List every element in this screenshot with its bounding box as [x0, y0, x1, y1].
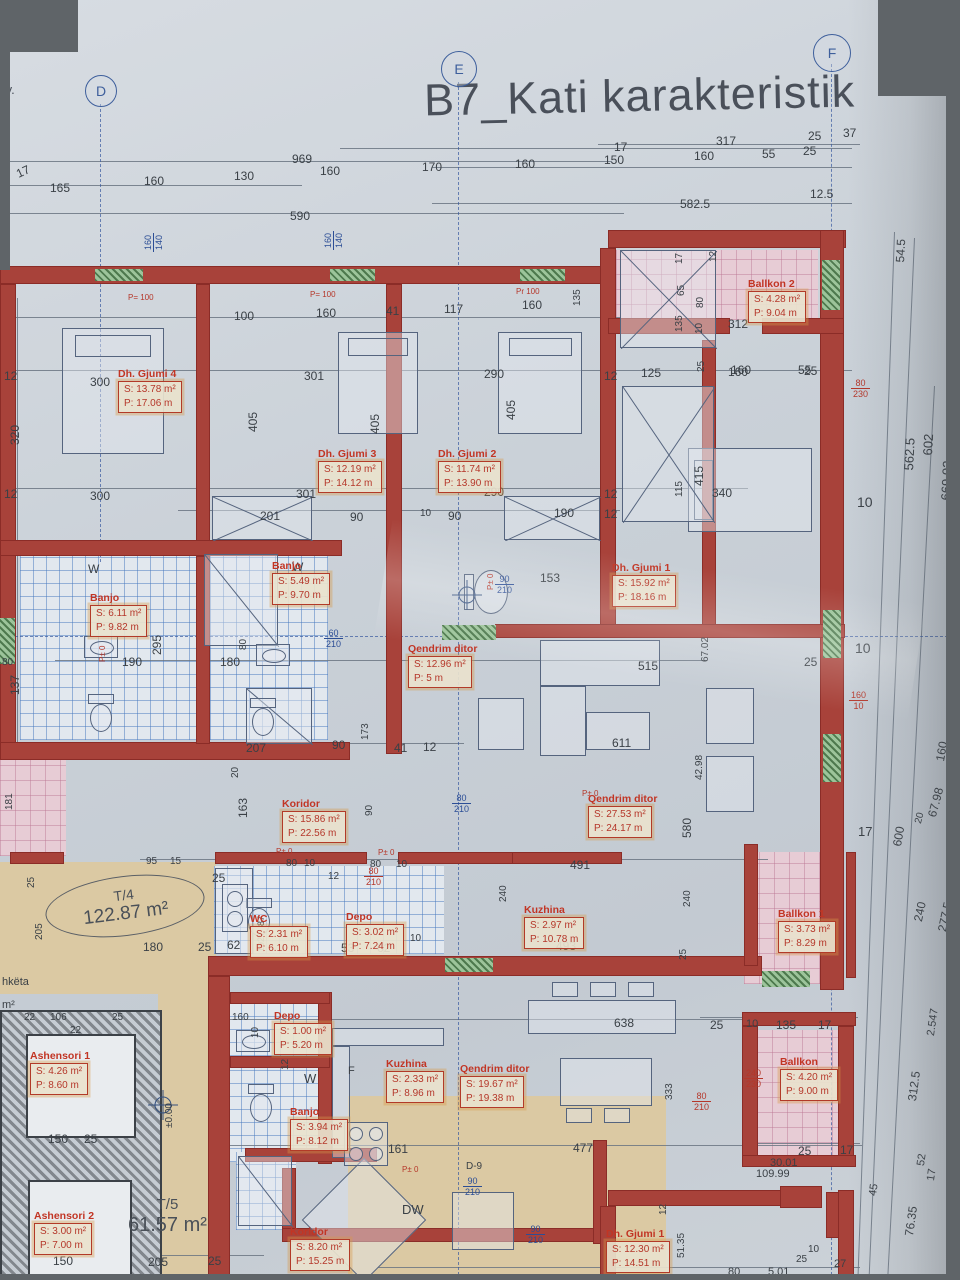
tag-width: 160 [143, 233, 154, 252]
room-label: Dh. Gjumi 4S: 13.78 m²P: 17.06 m [118, 368, 182, 413]
dimension-text: 160 [232, 1012, 249, 1023]
room-name: Ballkon 1 [778, 908, 836, 920]
dimension-text: 100 [234, 309, 254, 323]
room-metrics: S: 4.26 m²P: 8.60 m [30, 1063, 88, 1095]
bed-pillow [75, 335, 151, 357]
room-metrics: S: 8.20 m²P: 15.25 m [290, 1239, 350, 1271]
dimension-text: 317 [716, 134, 736, 148]
dimension-text: 205 [148, 1255, 168, 1269]
room-metrics: S: 12.30 m²P: 14.51 m [606, 1241, 670, 1273]
tag-height: 210 [692, 1102, 711, 1112]
dimension-text: 170 [422, 160, 442, 174]
dimension-text: F [348, 1065, 355, 1077]
room-area: S: 4.28 m² [754, 293, 800, 307]
dimension-text: 117 [444, 302, 463, 316]
door-tag: 80210 [452, 793, 471, 815]
compass-icon [452, 580, 482, 610]
room-area: S: 3.73 m² [784, 923, 830, 937]
dimension-text: 125 [641, 366, 661, 380]
dimension-text: 491 [570, 858, 590, 872]
wall [780, 1186, 822, 1208]
room-perimeter: P: 17.06 m [124, 397, 176, 411]
dimension-text: 153 [540, 571, 560, 585]
room-label: KuzhinaS: 2.33 m²P: 8.96 m [386, 1058, 444, 1103]
dimension-text: 340 [712, 486, 732, 500]
room-area: S: 6.11 m² [96, 607, 141, 621]
room-label: Dh. Gjumi 3S: 12.19 m²P: 14.12 m [318, 448, 382, 493]
room-area: S: 13.78 m² [124, 383, 176, 397]
wall [398, 852, 515, 864]
room-name: Qendrim ditor [460, 1063, 529, 1075]
dimension-text: 45 [867, 1183, 881, 1197]
room-perimeter: P: 5 m [414, 672, 466, 686]
tag-height: 140 [154, 233, 164, 252]
furniture-chair [604, 1108, 630, 1123]
room-area: S: 2.31 m² [256, 928, 302, 942]
dimension-text: 405 [246, 412, 260, 432]
floor-plan-photo: B7_Kati karakteristik .v. D E F T/4 122.… [0, 0, 960, 1280]
room-name: Banjo [90, 592, 147, 604]
dimension-text: 12 [658, 1204, 669, 1215]
room-name: Kuzhina [524, 904, 584, 916]
dimension-text: 17 [858, 824, 872, 839]
dimension-text: 165 [50, 181, 70, 195]
photo-edge [946, 0, 960, 1280]
room-perimeter: P: 8.12 m [296, 1135, 342, 1149]
dimension-text: 12 [280, 1059, 291, 1070]
grid-bubble-d: D [85, 75, 117, 107]
room-metrics: S: 3.02 m²P: 7.24 m [346, 924, 404, 956]
note-text: P± 0 [98, 646, 107, 662]
grid-bubble-d-label: D [96, 83, 106, 99]
dimension-text: 160 [731, 363, 751, 377]
dimension-text: 10 [304, 858, 315, 869]
dimension-text: 10 [250, 1027, 261, 1038]
wall [846, 852, 856, 978]
dimension-text: 25 [198, 940, 211, 954]
dimension-text: 301 [296, 487, 316, 501]
room-metrics: S: 27.53 m²P: 24.17 m [588, 806, 652, 838]
dimension-text: 12 [328, 871, 339, 882]
dimension-text: 10 [857, 494, 873, 510]
dimension-text: 62 [227, 938, 240, 952]
dimension-text: 25 [678, 949, 689, 960]
room-perimeter: P: 7.00 m [40, 1239, 86, 1253]
room-perimeter: P: 19.38 m [466, 1092, 518, 1106]
room-name: Ashensori 2 [34, 1210, 94, 1222]
room-label: KuzhinaS: 2.97 m²P: 10.78 m [524, 904, 584, 949]
dimension-text: 135 [776, 1018, 796, 1032]
furniture-sink [256, 644, 290, 666]
dimension-text: 25 [710, 1018, 723, 1032]
dimension-line [432, 203, 852, 204]
dimension-text: 76.35 [902, 1205, 920, 1237]
room-area: S: 3.94 m² [296, 1121, 342, 1135]
room-label: Ashensori 1S: 4.26 m²P: 8.60 m [30, 1050, 90, 1095]
dimension-text: 163 [236, 798, 250, 818]
room-label: KoridorS: 8.20 m²P: 15.25 m [290, 1226, 350, 1271]
wall [495, 624, 845, 638]
dimension-text: 135 [572, 289, 583, 306]
furniture-item [540, 686, 586, 756]
room-metrics: S: 13.78 m²P: 17.06 m [118, 381, 182, 413]
room-metrics: S: 4.28 m²P: 9.04 m [748, 291, 806, 323]
dimension-text: 207 [246, 741, 266, 755]
dimension-text: 160 [515, 157, 535, 171]
room-label: KoridorS: 15.86 m²P: 22.56 m [282, 798, 346, 843]
dimension-text: 12 [604, 487, 617, 501]
dimension-text: 333 [664, 1083, 675, 1100]
dimension-text: 90 [364, 805, 375, 816]
stove-burner [349, 1127, 363, 1141]
door-tag: 90210 [463, 1176, 482, 1198]
wall [742, 1026, 758, 1162]
room-name: Dh. Gjumi 1 [606, 1228, 670, 1240]
dimension-text: 90 [350, 510, 363, 524]
room-perimeter: P: 5.20 m [280, 1039, 326, 1053]
sink-basin [227, 911, 243, 927]
dimension-text: 205 [34, 923, 45, 940]
dimension-text: 25 [696, 361, 707, 372]
dimension-text: 12 [604, 507, 617, 521]
room-name: Dh. Gjumi 4 [118, 368, 182, 380]
room-area: S: 19.67 m² [466, 1078, 518, 1092]
dimension-text: 55 [762, 147, 775, 161]
note-text: P± 0 [402, 1165, 418, 1174]
dimension-text: 2.547 [925, 1008, 941, 1037]
dimension-text: 201 [260, 509, 280, 523]
window-hatch [822, 260, 840, 310]
dimension-text: 150 [48, 1132, 68, 1146]
dimension-text: 25 [798, 1144, 811, 1158]
wall [838, 1026, 854, 1162]
t5-area: 61.57 m² [128, 1214, 207, 1236]
dimension-text: 12 [423, 740, 436, 754]
dimension-text: 90 [332, 738, 345, 752]
room-area: S: 12.19 m² [324, 463, 376, 477]
dimension-text: 300 [90, 489, 110, 503]
window-hatch [823, 734, 841, 782]
dimension-text: W [304, 1071, 316, 1086]
room-perimeter: P: 9.00 m [786, 1085, 832, 1099]
dimension-text: 25 [212, 871, 225, 885]
dimension-text: 25 [112, 1012, 123, 1023]
furniture-stove [344, 1122, 388, 1166]
grid-bubble-e-label: E [454, 61, 463, 77]
grid-bubble-f: F [813, 34, 851, 72]
door-tag: 90210 [495, 574, 514, 596]
wall [196, 284, 210, 544]
room-area: S: 2.33 m² [392, 1073, 438, 1087]
room-metrics: S: 4.20 m²P: 9.00 m [780, 1069, 838, 1101]
grid-bubble-f-label: F [828, 45, 837, 61]
t5-id: T/5 [157, 1196, 179, 1213]
room-perimeter: P: 6.10 m [256, 942, 302, 956]
room-perimeter: P: 7.24 m [352, 940, 398, 954]
room-metrics: S: 6.11 m²P: 9.82 m [90, 605, 147, 637]
window-hatch [520, 269, 565, 281]
dimension-text: 17 [925, 1168, 939, 1182]
wall [744, 844, 758, 966]
room-area: S: 5.49 m² [278, 575, 324, 589]
room-name: Qendrim ditor [408, 643, 477, 655]
door-arc [252, 1146, 298, 1192]
dimension-text: 20 [913, 811, 927, 825]
room-label: BanjoS: 5.49 m²P: 9.70 m [272, 560, 330, 605]
dimension-text: 130 [234, 169, 254, 183]
wall [742, 1012, 856, 1026]
dimension-text: 638 [614, 1016, 634, 1030]
tag-width: 80 [692, 1091, 711, 1102]
dimension-text: 240 [682, 890, 693, 907]
dimension-text: 17 [14, 162, 32, 180]
room-label: BanjoS: 3.94 m²P: 8.12 m [290, 1106, 348, 1151]
room-perimeter: P: 22.56 m [288, 827, 340, 841]
door-arc [150, 556, 206, 612]
dimension-text: 80 [695, 297, 706, 308]
dimension-text: 25 [808, 129, 821, 143]
room-name: Dh. Gjumi 3 [318, 448, 382, 460]
room-perimeter: P: 10.78 m [530, 933, 578, 947]
door-tag: 80210 [692, 1091, 711, 1113]
dimension-text: 25 [84, 1132, 97, 1146]
tag-height: 10 [849, 701, 868, 711]
dimension-text: 25 [796, 1254, 807, 1265]
room-metrics: S: 2.31 m²P: 6.10 m [250, 926, 308, 958]
dimension-text: 137 [8, 675, 22, 695]
tag-height: 230 [851, 389, 870, 399]
window-hatch [330, 269, 375, 281]
dimension-text: m² [2, 999, 15, 1011]
dimension-text: 12 [708, 251, 719, 262]
furniture-chair [628, 982, 654, 997]
sink-basin [262, 649, 286, 663]
door-tag: 16010 [849, 690, 868, 712]
dimension-text: 135 [674, 315, 685, 332]
wall [512, 852, 622, 864]
dimension-text: 37 [843, 126, 856, 140]
room-metrics: S: 12.19 m²P: 14.12 m [318, 461, 382, 493]
stove-burner [349, 1147, 363, 1161]
window-hatch [442, 625, 496, 640]
wall [0, 284, 16, 556]
dimension-text: 80 [2, 657, 13, 668]
room-label: Qendrim ditorS: 12.96 m²P: 5 m [408, 643, 477, 688]
dimension-text: ±0.00 [164, 1103, 175, 1128]
room-perimeter: P: 18.16 m [618, 591, 670, 605]
furniture-item [528, 1000, 676, 1034]
room-label: BallkonS: 4.20 m²P: 9.00 m [780, 1056, 838, 1101]
dimension-text: 25 [208, 1254, 221, 1268]
dimension-text: 290 [484, 367, 504, 381]
door-tag: 160140 [323, 231, 345, 250]
dimension-text: 10 [746, 1018, 758, 1030]
dimension-text: 602 [920, 433, 936, 455]
room-metrics: S: 12.96 m²P: 5 m [408, 656, 472, 688]
dimension-text: hkëta [2, 976, 29, 988]
tag-width: 90 [463, 1176, 482, 1187]
dimension-text: 240 [498, 885, 509, 902]
room-label: Ballkon 1S: 3.73 m²P: 8.29 m [778, 908, 836, 953]
room-metrics: S: 15.86 m²P: 22.56 m [282, 811, 346, 843]
room-metrics: S: 2.33 m²P: 8.96 m [386, 1071, 444, 1103]
dimension-text: W [88, 562, 99, 576]
tag-height: 140 [334, 231, 344, 250]
tag-height: 230 [744, 1079, 763, 1089]
room-label: WCS: 2.31 m²P: 6.10 m [250, 913, 308, 958]
dimension-text: 405 [368, 414, 382, 434]
furniture-item [560, 1058, 652, 1106]
stove-burner [369, 1147, 383, 1161]
dimension-text: 969 [292, 152, 312, 166]
dimension-text: 295 [150, 635, 164, 655]
door-tag: 160140 [143, 233, 165, 252]
dimension-text: 150 [53, 1254, 73, 1268]
dimension-text: 52 [915, 1153, 929, 1167]
furniture-toilet-bowl [252, 708, 274, 736]
dimension-text: 10 [410, 933, 421, 944]
furniture-item [332, 1028, 444, 1046]
dimension-text: 22 [24, 1012, 35, 1023]
room-name: Depo [346, 911, 404, 923]
note-text: P± 0 [378, 848, 394, 857]
furniture-toilet-tank [250, 698, 276, 708]
drawing-title: B7_Kati karakteristik [424, 65, 856, 126]
bed-pillow [348, 338, 408, 356]
room-perimeter: P: 13.90 m [444, 477, 495, 491]
tag-height: 210 [495, 585, 514, 595]
room-label: Ballkon 2S: 4.28 m²P: 9.04 m [748, 278, 806, 323]
dimension-text: 312.5 [905, 1070, 923, 1102]
dimension-text: 15 [170, 856, 181, 867]
room-area: S: 27.53 m² [594, 808, 646, 822]
dimension-text: 12.5 [810, 187, 833, 201]
dimension-text: 160 [320, 164, 340, 178]
dimension-text: 180 [143, 940, 163, 954]
room-label: Dh. Gjumi 1S: 12.30 m²P: 14.51 m [606, 1228, 670, 1273]
room-name: Koridor [282, 798, 346, 810]
furniture-chair [552, 982, 578, 997]
furniture-chair [590, 982, 616, 997]
furniture-toilet-tank [246, 898, 272, 908]
tag-width: 80 [851, 378, 870, 389]
dimension-text: 51.35 [676, 1233, 687, 1258]
dimension-text: 582.5 [680, 197, 710, 211]
dimension-text: 515 [638, 659, 658, 673]
dimension-text: 160 [144, 174, 164, 188]
dimension-line [432, 167, 852, 168]
room-area: S: 12.30 m² [612, 1243, 664, 1257]
dimension-text: 54.5 [893, 239, 908, 263]
dimension-line [0, 213, 624, 214]
furniture-wardrobe [622, 386, 714, 522]
tag-width: 160 [323, 231, 334, 250]
dimension-text: 562.5 [901, 437, 918, 470]
room-name: Ballkon 2 [748, 278, 806, 290]
dimension-text: 10 [808, 1244, 819, 1255]
terrace-fill [158, 994, 212, 1280]
dimension-text: 190 [122, 655, 142, 669]
furniture-wardrobe [504, 496, 600, 540]
dimension-text: 405 [504, 400, 518, 420]
room-label: DepoS: 3.02 m²P: 7.24 m [346, 911, 404, 956]
furniture-item [706, 756, 754, 812]
dimension-text: 10 [396, 859, 407, 870]
dimension-text: 160 [316, 306, 336, 320]
furniture-sink [222, 884, 248, 932]
room-name: WC [250, 913, 308, 925]
dimension-text: 300 [90, 375, 110, 389]
tag-width: 60 [324, 628, 343, 639]
door-tag: 240230 [744, 1068, 763, 1090]
window-hatch [762, 971, 810, 987]
dimension-text: 161 [388, 1142, 408, 1156]
dimension-text: 41 [394, 741, 407, 755]
dimension-text: 10 [694, 323, 705, 334]
room-perimeter: P: 24.17 m [594, 822, 646, 836]
wall [608, 230, 846, 248]
dimension-text: 90 [448, 509, 461, 523]
tag-height: 210 [526, 1235, 545, 1245]
dimension-text: 106 [50, 1012, 67, 1023]
furniture-toilet-tank [248, 1084, 274, 1094]
room-label: Ashensori 2S: 3.00 m²P: 7.00 m [34, 1210, 94, 1255]
dimension-text: 17 [840, 1143, 853, 1157]
room-perimeter: P: 9.82 m [96, 621, 141, 635]
tag-height: 210 [364, 877, 383, 887]
room-perimeter: P: 9.04 m [754, 307, 800, 321]
room-name: Banjo [272, 560, 330, 572]
room-metrics: S: 5.49 m²P: 9.70 m [272, 573, 330, 605]
dimension-text: 10 [855, 640, 871, 656]
dimension-text: 42.98 [694, 755, 705, 780]
room-area: S: 11.74 m² [444, 463, 495, 477]
dimension-text: D-9 [466, 1161, 482, 1172]
room-perimeter: P: 8.96 m [392, 1087, 438, 1101]
dimension-text: 477 [573, 1141, 593, 1155]
dimension-text: 181 [4, 793, 15, 810]
furniture-item [452, 1192, 514, 1250]
tag-width: 90 [495, 574, 514, 585]
dimension-text: 22 [70, 1025, 81, 1036]
dimension-text: 67.98 [925, 786, 946, 819]
window-hatch [445, 958, 493, 972]
dimension-text: 160 [694, 149, 714, 163]
room-name: Ashensori 1 [30, 1050, 90, 1062]
room-area: S: 15.92 m² [618, 577, 670, 591]
dimension-text: 150 [604, 153, 624, 167]
dimension-text: 25 [804, 655, 817, 669]
dimension-text: 312 [728, 317, 748, 331]
furniture-toilet-tank [88, 694, 114, 704]
dimension-text: 301 [304, 369, 324, 383]
furniture-toilet-bowl [250, 1094, 272, 1122]
door-tag: 90210 [526, 1224, 545, 1246]
wall [208, 976, 230, 1280]
dimension-text: 67.02 [700, 637, 711, 662]
dimension-text: 17 [674, 253, 685, 264]
furniture-toilet-bowl [90, 704, 112, 732]
terrace-t5-label: T/5 61.57 m² [128, 1196, 207, 1237]
dimension-text: 20 [230, 767, 241, 778]
dimension-text: 10 [420, 508, 431, 519]
note-text: P± 0 [276, 847, 292, 856]
window-hatch [95, 269, 143, 281]
room-label: Qendrim ditorS: 27.53 m²P: 24.17 m [588, 793, 657, 838]
dimension-text: 80 [370, 859, 381, 870]
dimension-text: 80 [238, 639, 249, 650]
dimension-line [0, 317, 620, 318]
